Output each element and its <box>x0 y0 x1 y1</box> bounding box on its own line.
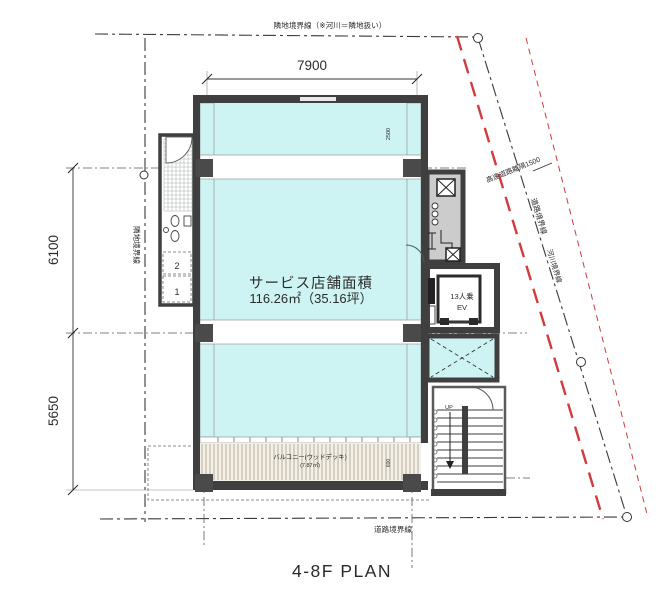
wc-stall-1-number: 1 <box>174 287 179 297</box>
beam-band-upper <box>200 155 421 179</box>
boundary-label-top: 隣地境界線（※河川＝隣地扱い） <box>274 20 387 30</box>
floor-plan-drawing: 2 1 13人乗 EV UP サービス店舗面積 116.26㎡（35.16坪） … <box>0 0 660 589</box>
balcony-name-label: バルコニー(ウッドデッキ) <box>273 452 346 461</box>
boundary-corner-marker-bottom <box>623 513 632 522</box>
boundary-label-diagonal-river: 河川境界線 <box>545 248 564 284</box>
grid-bubble <box>140 171 148 179</box>
wall-bottom-slab <box>193 481 428 490</box>
column <box>403 474 421 492</box>
beam-band-lower <box>200 320 421 344</box>
balcony-area-label: (7.87㎡) <box>300 461 320 469</box>
dimension-upper-zone: 2500 <box>386 128 392 140</box>
storefront-band <box>200 437 421 443</box>
boundary-corner-marker-top <box>474 34 483 43</box>
room-area-label: 116.26㎡（35.16坪） <box>249 291 372 306</box>
column <box>195 474 213 492</box>
toilet-fixture <box>171 231 179 242</box>
elevator-door-jamb <box>440 318 449 325</box>
wc-stall-2-number: 2 <box>174 261 179 271</box>
dimension-balcony-depth: 600 <box>386 459 392 468</box>
stair-stringer <box>462 406 468 474</box>
boundary-label-bottom: 道路境界線 <box>374 524 412 534</box>
dimension-left-lower: 5650 <box>46 396 61 426</box>
boundary-label-left: 隣地境界線 <box>132 226 142 264</box>
elevator-counterweight <box>428 278 435 304</box>
dimension-left-upper: 6100 <box>46 235 61 265</box>
plan-title: 4-8F PLAN <box>292 561 392 581</box>
top-wall-opening <box>300 97 336 101</box>
boundary-marker-mid <box>577 358 586 367</box>
toilet-fixture <box>171 216 179 227</box>
floor-plan-page: 2 1 13人乗 EV UP サービス店舗面積 116.26㎡（35.16坪） … <box>0 0 660 589</box>
elevator-capacity-label: 13人乗 <box>450 291 474 301</box>
pipe-risers <box>432 203 438 225</box>
river-boundary-red-thin-line <box>526 38 648 518</box>
boundary-label-diagonal-road: 道路境界線 <box>529 197 550 236</box>
column <box>195 324 213 342</box>
stairwell <box>433 387 505 493</box>
sink-fixture <box>164 228 169 233</box>
boundary-line-top <box>95 34 474 37</box>
boundary-line-bottom <box>100 517 624 519</box>
column <box>195 159 213 177</box>
service-room-fill <box>200 103 421 437</box>
wc-cabinet <box>184 216 191 226</box>
column <box>403 159 421 177</box>
dimension-top-width: 7900 <box>297 58 327 73</box>
room-name-label: サービス店舗面積 <box>249 275 373 292</box>
stair-bottom-wall <box>431 489 506 496</box>
elevator-door-jamb <box>469 318 478 325</box>
stair-up-label: UP <box>445 405 453 411</box>
column <box>403 324 421 342</box>
elevator-label: EV <box>457 303 467 312</box>
